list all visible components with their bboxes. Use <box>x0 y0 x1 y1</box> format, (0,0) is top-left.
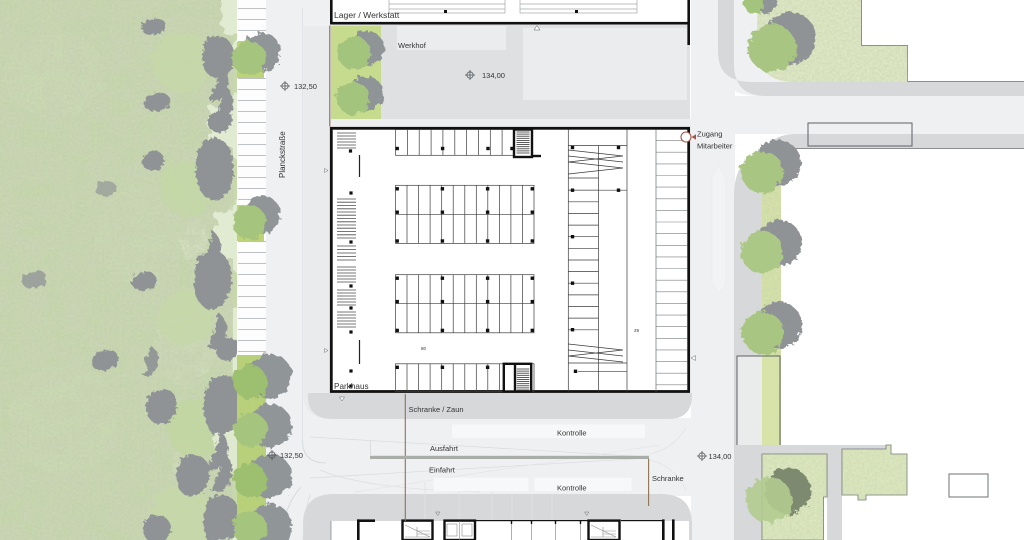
svg-text:Einfahrt: Einfahrt <box>429 466 456 475</box>
svg-text:Parkhaus: Parkhaus <box>334 382 369 391</box>
svg-text:Mitarbeiter: Mitarbeiter <box>697 142 733 151</box>
svg-text:Kontrolle: Kontrolle <box>557 429 587 438</box>
svg-text:Ausfahrt: Ausfahrt <box>430 444 459 453</box>
svg-text:80: 80 <box>421 346 427 351</box>
svg-text:132,50: 132,50 <box>280 451 303 460</box>
svg-text:Schranke: Schranke <box>652 474 684 483</box>
svg-text:29: 29 <box>634 328 640 333</box>
svg-text:132,50: 132,50 <box>294 82 317 91</box>
svg-text:134,00: 134,00 <box>482 71 505 80</box>
svg-text:Kontrolle: Kontrolle <box>557 484 587 493</box>
svg-text:Schranke / Zaun: Schranke / Zaun <box>409 405 464 414</box>
svg-text:Werkhof: Werkhof <box>398 41 427 50</box>
svg-text:Lager / Werkstatt: Lager / Werkstatt <box>334 10 400 20</box>
svg-text:134,00: 134,00 <box>709 452 732 461</box>
svg-text:Zugang: Zugang <box>697 130 722 139</box>
svg-text:Planckstraße: Planckstraße <box>278 131 287 178</box>
